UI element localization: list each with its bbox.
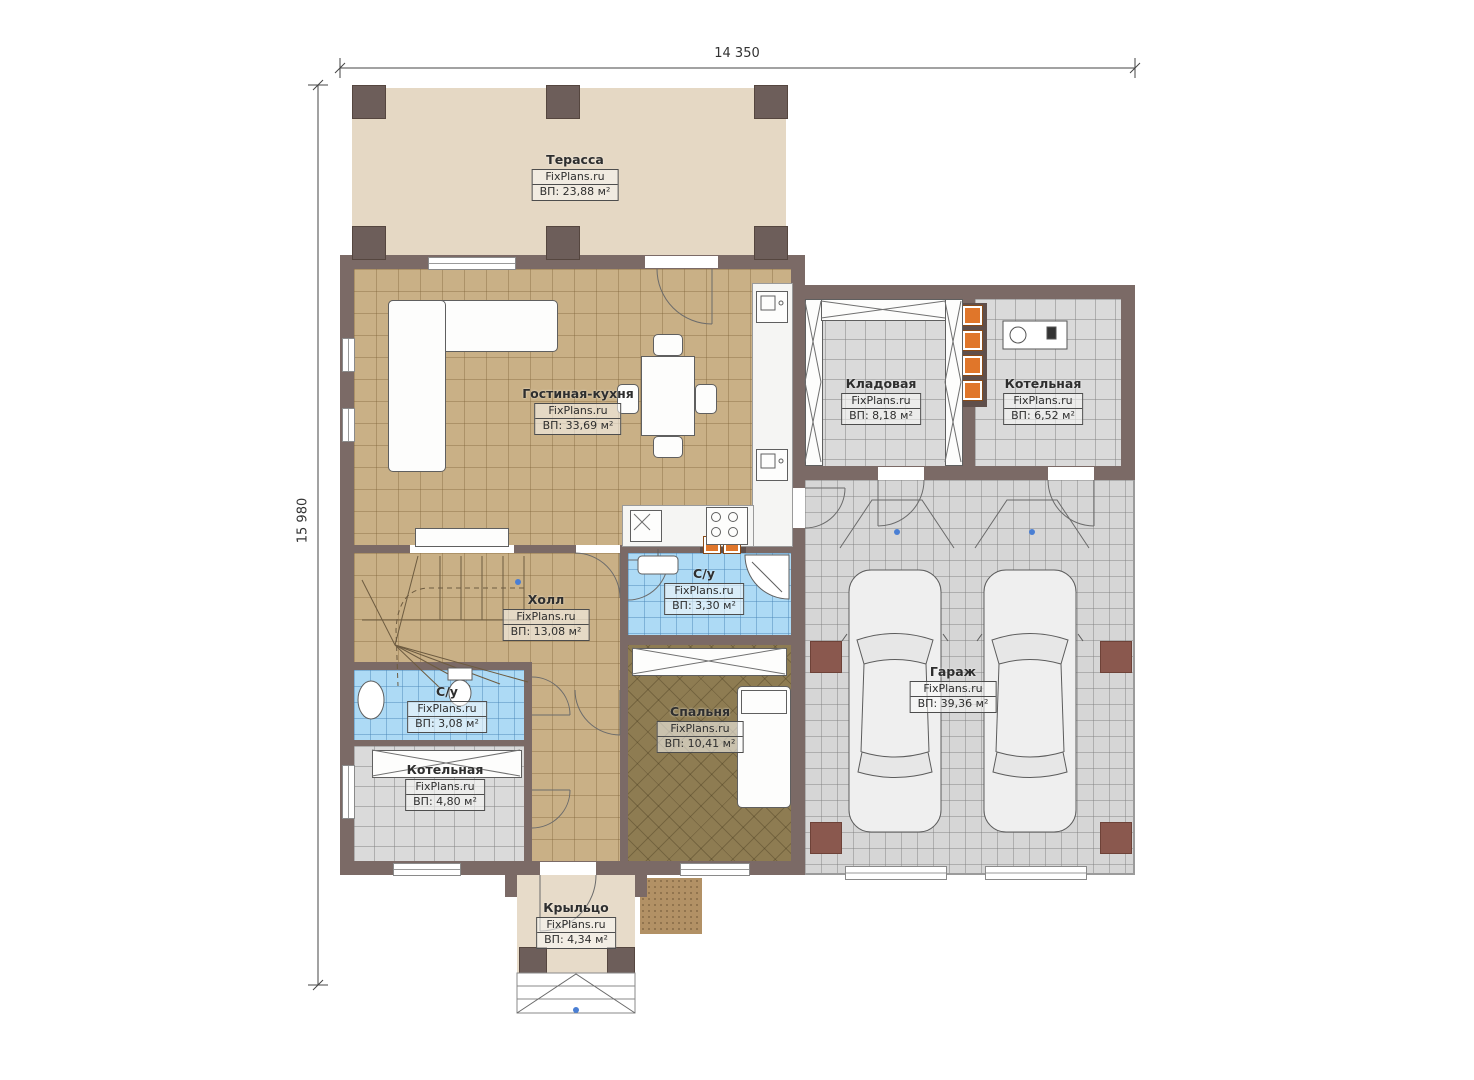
room-info-box: FixPlans.ru ВП: 23,88 м² [532, 169, 619, 201]
room-area: ВП: 6,52 м² [1004, 408, 1082, 423]
room-name: Крыльцо [543, 900, 608, 915]
wall-living-hall-b [514, 545, 576, 553]
room-area: ВП: 3,08 м² [408, 716, 486, 731]
watermark: FixPlans.ru [537, 918, 615, 932]
garage-storage-door-opening [878, 467, 924, 480]
wall-leftrooms-top [354, 662, 532, 670]
room-label-living: Гостиная-кухня FixPlans.ru ВП: 33,69 м² [522, 386, 634, 435]
garage-pillar [1100, 641, 1132, 673]
room-name: Кладовая [846, 376, 917, 391]
wall-leftrooms-right [524, 662, 532, 861]
garage-pillar [1100, 822, 1132, 854]
kitchen-oven-unit [756, 449, 788, 481]
terrace-pillar [352, 85, 386, 119]
room-label-terrace: Терасса FixPlans.ru ВП: 23,88 м² [532, 152, 619, 201]
window-bedroom-bottom [680, 863, 750, 876]
room-info-box: FixPlans.ru ВП: 3,08 м² [407, 701, 487, 733]
storage-shelf-right [945, 299, 963, 466]
watermark: FixPlans.ru [504, 610, 589, 624]
terrace-pillar [352, 226, 386, 260]
entrance-door-opening [540, 862, 596, 875]
room-info-box: FixPlans.ru ВП: 33,69 м² [535, 403, 622, 435]
sofa-chaise [388, 300, 446, 472]
watermark: FixPlans.ru [1004, 394, 1082, 408]
room-area: ВП: 33,69 м² [536, 418, 621, 433]
room-label-garage: Гараж FixPlans.ru ВП: 39,36 м² [910, 664, 997, 713]
flue-tile [963, 381, 982, 400]
chair [653, 436, 683, 458]
window-living-left-2 [342, 408, 355, 442]
room-info-box: FixPlans.ru ВП: 10,41 м² [657, 721, 744, 753]
room-name: Спальня [670, 704, 730, 719]
porch-pillar [607, 947, 635, 975]
floor-plan: 14 350 15 980 Терасса FixPlans.ru ВП: 23… [0, 0, 1474, 1080]
room-info-box: FixPlans.ru ВП: 13,08 м² [503, 609, 590, 641]
room-area: ВП: 23,88 м² [533, 184, 618, 199]
wardrobe [632, 648, 787, 676]
wall-exterior-right [791, 255, 805, 875]
room-label-bath-left: С/у FixPlans.ru ВП: 3,08 м² [407, 684, 487, 733]
room-info-box: FixPlans.ru ВП: 8,18 м² [841, 393, 921, 425]
wall-wing-top [805, 285, 1135, 299]
ground-patch [640, 878, 702, 934]
window-living-top [428, 257, 516, 270]
watermark: FixPlans.ru [842, 394, 920, 408]
dimension-height-label: 15 980 [296, 486, 311, 556]
watermark: FixPlans.ru [665, 584, 743, 598]
flue-tile [963, 331, 982, 350]
room-name: Котельная [407, 762, 484, 777]
garage-gate-2 [985, 866, 1087, 880]
porch-steps [517, 973, 635, 1013]
terrace-pillar [754, 226, 788, 260]
room-info-box: FixPlans.ru ВП: 39,36 м² [910, 681, 997, 713]
room-label-storage: Кладовая FixPlans.ru ВП: 8,18 м² [841, 376, 921, 425]
sideboard [415, 528, 509, 547]
kitchen-sink [630, 510, 662, 542]
garage-gate-1 [845, 866, 947, 880]
terrace-door-opening [645, 256, 718, 268]
terrace-pillar [546, 85, 580, 119]
garage-pillar [810, 822, 842, 854]
room-name: Гараж [930, 664, 976, 679]
flue-tile [963, 356, 982, 375]
room-area: ВП: 4,34 м² [537, 932, 615, 947]
bed-pillow [741, 690, 787, 714]
watermark: FixPlans.ru [536, 404, 621, 418]
wall-hall-bedroom [620, 545, 628, 861]
watermark: FixPlans.ru [406, 780, 484, 794]
watermark: FixPlans.ru [658, 722, 743, 736]
garage-pillar [810, 641, 842, 673]
window-boiler-left [342, 765, 355, 819]
storage-shelf-left [805, 299, 823, 466]
porch-marker-dot [573, 1007, 579, 1013]
kitchen-garage-door-opening [792, 488, 805, 528]
room-info-box: FixPlans.ru ВП: 3,30 м² [664, 583, 744, 615]
watermark: FixPlans.ru [408, 702, 486, 716]
room-label-bedroom: Спальня FixPlans.ru ВП: 10,41 м² [657, 704, 744, 753]
room-label-boiler-top: Котельная FixPlans.ru ВП: 6,52 м² [1003, 376, 1083, 425]
room-name: С/у [436, 684, 458, 699]
porch-wall-stub-right [635, 875, 647, 897]
porch-wall-stub-left [505, 875, 517, 897]
chair [653, 334, 683, 356]
room-name: Терасса [546, 152, 604, 167]
storage-shelf-top [821, 299, 947, 321]
watermark: FixPlans.ru [911, 682, 996, 696]
dining-table [641, 356, 695, 436]
kitchen-sink-unit [756, 291, 788, 323]
room-area: ВП: 13,08 м² [504, 624, 589, 639]
dimension-width-label: 14 350 [714, 46, 760, 61]
room-info-box: FixPlans.ru ВП: 6,52 м² [1003, 393, 1083, 425]
room-name: Гостиная-кухня [522, 386, 634, 401]
room-label-boiler-left: Котельная FixPlans.ru ВП: 4,80 м² [405, 762, 485, 811]
terrace-pillar [546, 226, 580, 260]
room-info-box: FixPlans.ru ВП: 4,80 м² [405, 779, 485, 811]
watermark: FixPlans.ru [533, 170, 618, 184]
chair [695, 384, 717, 414]
room-name: С/у [693, 566, 715, 581]
flue-tile [963, 306, 982, 325]
room-label-bath-top: С/у FixPlans.ru ВП: 3,30 м² [664, 566, 744, 615]
window-boiler-bottom [393, 863, 461, 876]
stove [706, 507, 748, 545]
room-area: ВП: 4,80 м² [406, 794, 484, 809]
room-info-box: FixPlans.ru ВП: 4,34 м² [536, 917, 616, 949]
wall-leftrooms-mid [354, 740, 524, 746]
room-area: ВП: 10,41 м² [658, 736, 743, 751]
terrace-pillar [754, 85, 788, 119]
garage-boiler-door-opening [1048, 467, 1094, 480]
room-name: Холл [528, 592, 565, 607]
porch-pillar [519, 947, 547, 975]
room-label-porch: Крыльцо FixPlans.ru ВП: 4,34 м² [536, 900, 616, 949]
wall-wing-right [1121, 285, 1135, 480]
room-name: Котельная [1005, 376, 1082, 391]
room-label-hall: Холл FixPlans.ru ВП: 13,08 м² [503, 592, 590, 641]
room-area: ВП: 39,36 м² [911, 696, 996, 711]
window-living-left-1 [342, 338, 355, 372]
room-area: ВП: 3,30 м² [665, 598, 743, 613]
wall-living-hall-a [354, 545, 410, 553]
room-area: ВП: 8,18 м² [842, 408, 920, 423]
wall-bath-bedroom [628, 635, 791, 645]
